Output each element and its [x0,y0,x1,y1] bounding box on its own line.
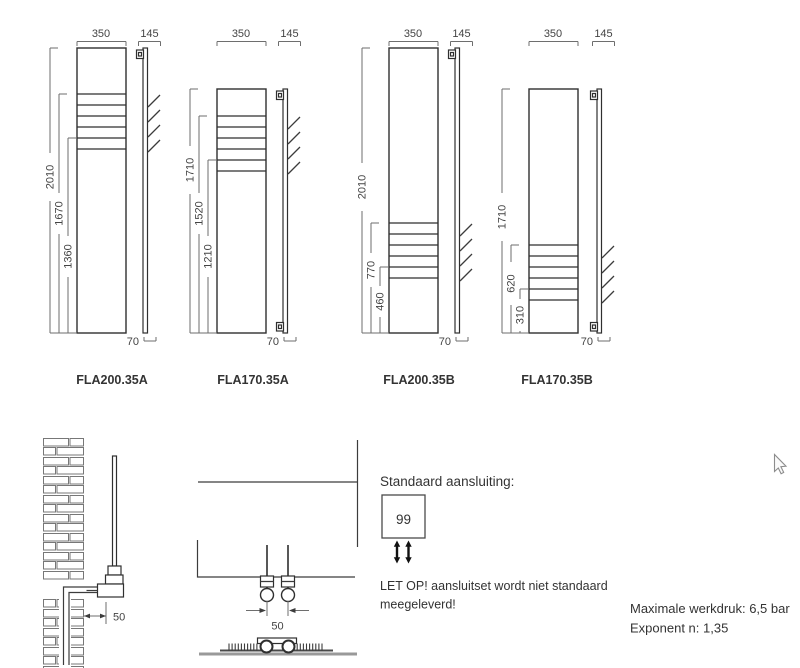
slot-bottom-dimension-label: 1210 [203,244,215,268]
top-dimension-lines [217,42,301,47]
model-label: FLA200.35A [76,373,148,387]
pipe-spacing-dimension: 50 [246,601,309,633]
slot-bottom-dimension-label: 460 [375,292,387,310]
pipe-spacing-label: 50 [271,621,283,633]
depth-dimension-label: 145 [594,28,612,40]
height-dimension-label: 1710 [497,205,509,229]
radiator-spec-sheet: 350 145 2010 1670 1360 70 FLA200.35A 350… [0,0,800,668]
warning-text-line2: meegeleverd! [380,598,456,612]
plan-view [199,638,357,654]
panel-depth-label: 70 [439,336,451,348]
figure-fla170-35b: 350 145 1710 620 310 70 FLA170.35B [497,28,615,387]
flow-arrows-icon [394,541,412,564]
wall-distance-dimension: 50 [84,602,125,624]
pipe-connection [283,641,295,653]
specifications: Maximale werkdruk: 6,5 bar Exponent n: 1… [630,601,790,636]
side-view [455,48,460,333]
wall-section-detail: 50 [41,438,125,668]
width-dimension-label: 350 [544,28,562,40]
slot-top-dimension-label: 1670 [54,201,66,225]
connection-code: 99 [396,512,411,527]
radiator-bottom-outline [198,440,359,577]
height-dimension-label: 2010 [357,175,369,199]
model-label: FLA170.35A [217,373,289,387]
fins [229,644,322,651]
width-dimension-label: 350 [404,28,422,40]
top-dimension-lines [77,42,161,47]
technical-drawing: 350 145 2010 1670 1360 70 FLA200.35A 350… [0,0,800,668]
depth-dimension-label: 145 [140,28,158,40]
panel-depth-dimension [144,337,156,341]
slot-top-dimension-label: 770 [366,261,378,279]
wall-distance-label: 50 [113,612,125,624]
figure-fla170-35a: 350 145 1710 1520 1210 70 FLA170.35A [185,28,301,387]
panel-depth-label: 70 [267,336,279,348]
width-dimension-label: 350 [232,28,250,40]
slot-hatch-marks [148,95,160,152]
slot-hatch-marks [460,224,472,281]
panel-depth-dimension [456,337,468,341]
model-label: FLA200.35B [383,373,455,387]
side-view [143,48,148,333]
panel-depth-dimension [598,337,610,341]
front-view [77,48,126,333]
bottom-connection-detail: 50 [198,440,359,654]
side-view [283,89,288,333]
panel-depth-label: 70 [127,336,139,348]
slot-hatch-marks [602,246,614,303]
figure-fla200-35b: 350 145 2010 770 460 70 FLA200.35B [357,28,473,387]
height-dimension-label: 1710 [185,158,197,182]
connection-heading: Standaard aansluiting: [380,474,514,489]
model-label: FLA170.35B [521,373,593,387]
connection-info: Standaard aansluiting: 99 LET OP! aanslu… [380,474,608,612]
mouse-cursor-icon [775,455,787,474]
slot-top-dimension-label: 1520 [194,201,206,225]
front-view [529,89,578,333]
panel-depth-label: 70 [581,336,593,348]
height-dimension-label: 2010 [45,165,57,189]
front-view [389,48,438,333]
depth-dimension-label: 145 [280,28,298,40]
depth-dimension-label: 145 [452,28,470,40]
connection-valves [261,545,295,602]
exponent-text: Exponent n: 1,35 [630,621,728,636]
panel-depth-dimension [284,337,296,341]
slot-bottom-dimension-label: 310 [515,306,527,324]
height-dimension-lines [50,48,76,333]
top-dimension-lines [529,42,615,47]
width-dimension-label: 350 [92,28,110,40]
slot-hatch-marks [288,117,300,174]
figure-fla200-35a: 350 145 2010 1670 1360 70 FLA200.35A [45,28,161,387]
top-dimension-lines [389,42,473,47]
max-pressure-text: Maximale werkdruk: 6,5 bar [630,601,790,616]
slot-bottom-dimension-label: 1360 [63,244,75,268]
pipe-connection [261,641,273,653]
side-view [597,89,602,333]
front-view [217,89,266,333]
warning-text-line1: LET OP! aansluitset wordt niet standaard [380,579,608,593]
slot-top-dimension-label: 620 [506,274,518,292]
radiator-panel-side [113,456,117,566]
